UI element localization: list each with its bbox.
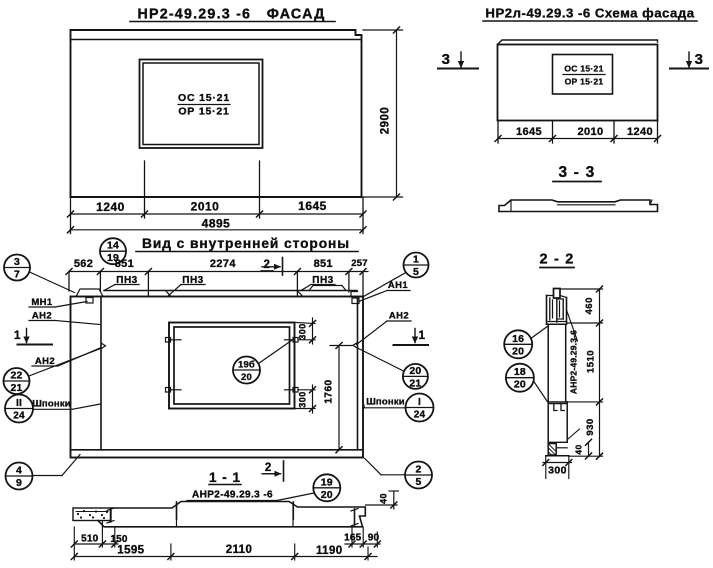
svg-text:165: 165 [344,533,362,544]
svg-text:7: 7 [14,269,20,281]
svg-text:АН2: АН2 [35,356,55,367]
svg-text:19б: 19б [238,360,255,371]
svg-text:3: 3 [14,256,20,268]
svg-text:1: 1 [14,328,21,342]
svg-text:24: 24 [13,411,25,422]
svg-text:МН1: МН1 [31,297,53,308]
svg-text:2: 2 [415,464,421,476]
svg-text:1240: 1240 [96,200,125,214]
svg-text:Вид с внутренней стороны: Вид с внутренней стороны [142,236,350,251]
svg-text:1645: 1645 [298,199,327,213]
svg-text:1: 1 [413,254,419,266]
svg-text:1510: 1510 [586,350,597,373]
svg-text:ОР 15·21: ОР 15·21 [565,77,604,87]
svg-text:ОС 15·21: ОС 15·21 [178,92,230,104]
svg-text:АН2: АН2 [32,311,52,322]
svg-text:150: 150 [110,534,128,545]
svg-text:19: 19 [321,476,333,488]
svg-text:300: 300 [548,465,567,477]
svg-text:5: 5 [415,476,421,488]
svg-text:20: 20 [514,379,526,391]
svg-text:1190: 1190 [316,545,343,557]
svg-text:ОС 15·21: ОС 15·21 [564,64,603,74]
svg-text:930: 930 [585,418,596,435]
svg-text:1 - 1: 1 - 1 [209,470,241,485]
svg-text:3: 3 [442,51,451,68]
svg-text:9: 9 [16,477,22,489]
svg-text:НР2л-49.29.3 -6 Схема фасада: НР2л-49.29.3 -6 Схема фасада [485,6,694,21]
svg-text:22: 22 [10,370,22,382]
svg-text:40: 40 [379,493,389,504]
svg-text:2 - 2: 2 - 2 [539,252,574,268]
svg-text:20: 20 [321,489,333,501]
svg-text:300: 300 [298,323,308,340]
svg-text:1240: 1240 [627,126,653,138]
svg-text:Шпонки: Шпонки [32,399,71,410]
svg-text:851: 851 [115,258,134,270]
svg-text:16: 16 [512,333,524,345]
svg-text:20: 20 [409,365,421,377]
svg-text:460: 460 [584,297,595,314]
svg-text:АН2: АН2 [389,311,409,322]
svg-text:510: 510 [81,534,99,545]
svg-text:1: 1 [418,328,425,342]
svg-text:2010: 2010 [577,126,603,138]
svg-text:II: II [16,398,22,409]
svg-text:НР2-49.29.3 -6 ФАСАД: НР2-49.29.3 -6 ФАСАД [137,7,325,23]
svg-text:1595: 1595 [117,545,144,557]
svg-text:40: 40 [574,444,584,454]
svg-text:562: 562 [74,258,93,270]
svg-text:3: 3 [695,51,704,68]
svg-text:5: 5 [413,266,419,278]
svg-text:ОР 15·21: ОР 15·21 [178,106,229,118]
svg-text:2900: 2900 [380,107,392,135]
svg-text:851: 851 [314,258,333,270]
svg-text:20: 20 [512,345,524,357]
svg-text:АНР2-49.29.3 -6: АНР2-49.29.3 -6 [192,490,273,501]
svg-text:1760: 1760 [324,379,335,403]
svg-text:Шпонки: Шпонки [366,397,405,408]
svg-text:21: 21 [409,377,421,389]
svg-text:18: 18 [514,366,526,378]
svg-text:21: 21 [10,382,22,394]
svg-text:24: 24 [414,410,426,421]
svg-text:2: 2 [265,462,272,474]
svg-text:20: 20 [241,372,252,383]
svg-text:4: 4 [16,465,22,477]
svg-text:257: 257 [351,258,367,269]
svg-text:300: 300 [298,391,308,408]
svg-text:АН1: АН1 [388,280,409,291]
svg-text:I: I [418,397,421,408]
svg-text:4895: 4895 [202,217,231,231]
svg-text:90: 90 [368,533,380,544]
svg-text:2010: 2010 [191,200,220,214]
svg-text:14: 14 [107,240,119,252]
svg-text:2: 2 [264,259,271,271]
svg-text:3 - 3: 3 - 3 [558,164,595,181]
svg-text:2110: 2110 [226,544,253,556]
svg-text:1645: 1645 [516,126,542,138]
svg-text:2274: 2274 [210,258,237,270]
